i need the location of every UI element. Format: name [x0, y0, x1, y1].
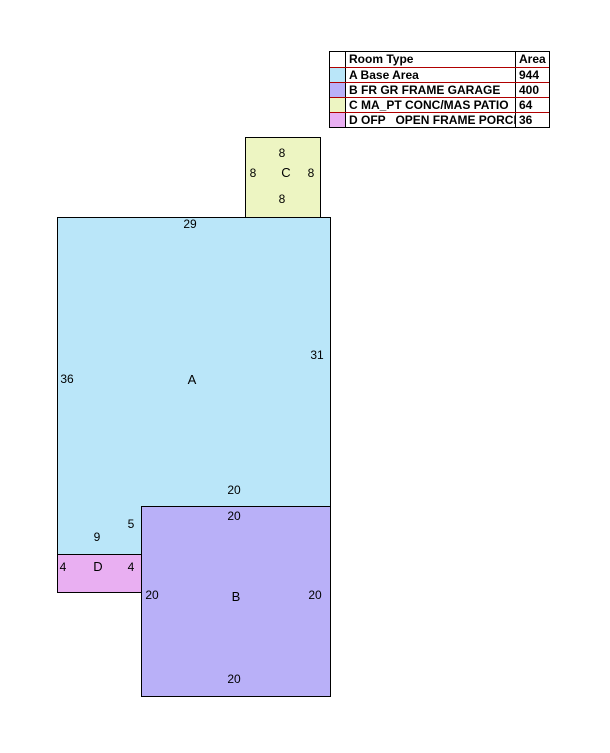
garage-dim-top: 20 — [227, 509, 241, 523]
base-dim-top: 29 — [183, 217, 197, 231]
legend-header-area: Area — [515, 52, 549, 67]
legend-area-value: 36 — [515, 113, 549, 127]
base-dim-bottom-left: 9 — [94, 530, 101, 544]
patio-area-label: C — [281, 165, 290, 180]
legend-row-garage: B FR GR FRAME GARAGE 400 — [330, 82, 549, 97]
legend-row-base-area: A Base Area 944 — [330, 67, 549, 82]
legend-room-type: B FR GR FRAME GARAGE — [345, 83, 515, 97]
legend-area-value: 400 — [515, 83, 549, 97]
legend-room-type: C MA_PT CONC/MAS PATIO — [345, 98, 515, 112]
base-area-color-swatch — [330, 68, 345, 82]
porch-dim-right: 4 — [128, 560, 135, 574]
patio-dim-bottom: 8 — [279, 192, 286, 206]
legend-area-value: 64 — [515, 98, 549, 112]
patio-dim-right: 8 — [308, 166, 315, 180]
garage-dim-bottom: 20 — [227, 672, 241, 686]
legend-room-type: A Base Area — [345, 68, 515, 82]
patio-dim-left: 8 — [250, 166, 257, 180]
garage-color-swatch — [330, 83, 345, 97]
porch-area-label: D — [93, 559, 102, 574]
base-dim-left: 36 — [60, 372, 74, 386]
base-area-label: A — [188, 372, 197, 387]
porch-color-swatch — [330, 113, 345, 127]
garage-dim-right: 20 — [308, 588, 322, 602]
patio-color-swatch — [330, 98, 345, 112]
base-dim-step: 5 — [128, 517, 135, 531]
base-dim-right: 31 — [310, 348, 324, 362]
garage-dim-left: 20 — [145, 588, 159, 602]
garage-area-label: B — [232, 589, 241, 604]
patio-dim-top: 8 — [279, 146, 286, 160]
porch-dim-left: 4 — [60, 560, 67, 574]
legend-header-row: Room Type Area — [330, 52, 549, 67]
room-type-legend-table: Room Type Area A Base Area 944 B FR GR F… — [329, 51, 550, 128]
legend-row-porch: D OFP OPEN FRAME PORCH 36 — [330, 112, 549, 127]
legend-area-value: 944 — [515, 68, 549, 82]
legend-header-swatch-cell — [330, 52, 345, 67]
base-dim-bottom-right: 20 — [227, 483, 241, 497]
legend-row-patio: C MA_PT CONC/MAS PATIO 64 — [330, 97, 549, 112]
legend-room-type: D OFP OPEN FRAME PORCH — [345, 113, 515, 127]
legend-header-room-type: Room Type — [345, 52, 515, 67]
